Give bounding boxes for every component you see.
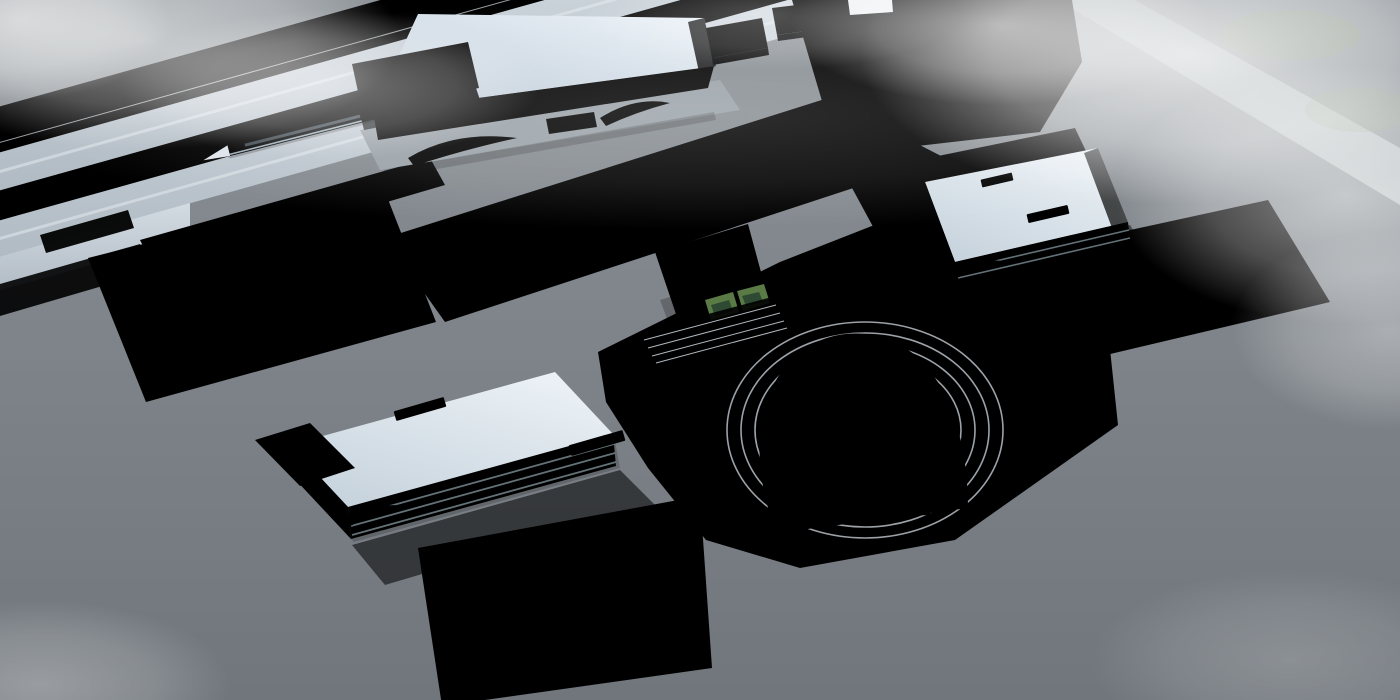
horseshoe-steps xyxy=(715,312,1015,548)
station-aerial-rendering xyxy=(0,0,1400,700)
aerial-render-stage xyxy=(0,0,1400,700)
